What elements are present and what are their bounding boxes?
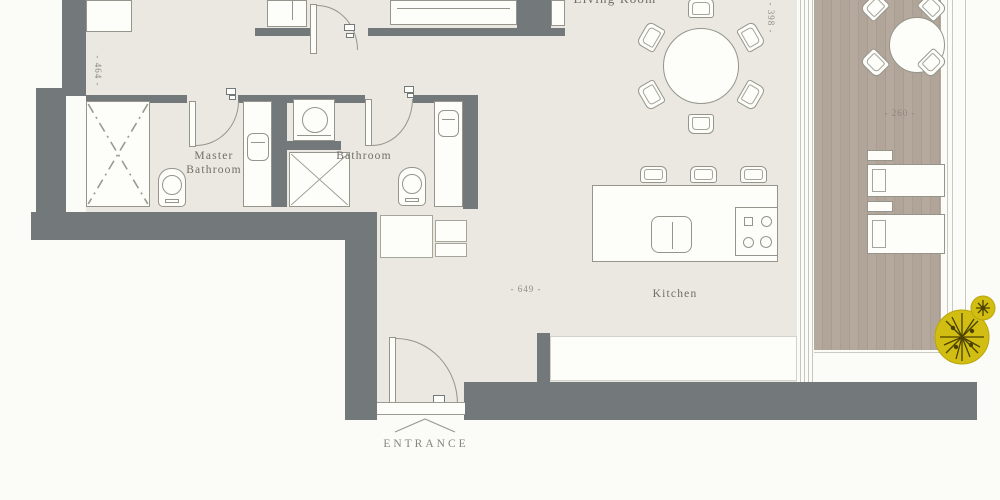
dining-table: [663, 28, 739, 104]
shower: [86, 101, 150, 207]
wall: [271, 95, 287, 207]
door-hardware: [226, 88, 236, 95]
island-sink-icon: [651, 216, 692, 253]
wall: [464, 382, 977, 420]
door-hardware: [346, 33, 354, 38]
door-hardware: [344, 24, 355, 31]
entrance-threshold: [377, 402, 465, 415]
sink-icon: [438, 110, 459, 137]
wall: [463, 95, 478, 209]
door-hardware: [404, 86, 414, 93]
toilet-icon: [398, 167, 426, 206]
door-hardware: [407, 93, 414, 98]
sliding-door-track: [797, 0, 814, 382]
kitchen-label: Kitchen: [640, 287, 710, 301]
dining-chair: [688, 0, 714, 18]
entrance-door-leaf: [389, 337, 396, 404]
sofa-edge-line: [397, 8, 510, 9]
wall: [31, 212, 377, 240]
door-hardware: [229, 95, 236, 100]
side-table: [867, 201, 893, 212]
dimension-balcony: - 260 -: [878, 108, 922, 118]
master-bath-door-leaf: [189, 101, 196, 147]
wardrobe-niche: [267, 0, 307, 27]
closet: [380, 215, 433, 258]
closet: [435, 243, 467, 257]
sofa: [390, 0, 517, 25]
dimension-kitchen: - 649 -: [500, 284, 552, 294]
master-bathroom-label: Master Bathroom: [182, 149, 246, 178]
closet: [86, 0, 132, 32]
bathroom-door-leaf: [365, 99, 372, 146]
shower-x-icon: [87, 102, 149, 206]
wall: [62, 0, 86, 96]
closet: [435, 220, 467, 242]
brand-seal-icon: [926, 293, 1000, 369]
bedroom-door-leaf: [310, 4, 317, 54]
bar-stool: [690, 166, 717, 183]
bar-stool: [640, 166, 667, 183]
dimension-hall: - 464 -: [91, 47, 103, 95]
wall: [36, 88, 66, 214]
sink-icon: [247, 133, 269, 161]
dining-chair: [688, 114, 714, 134]
entrance-chevron-icon: [391, 416, 459, 436]
wall-stub: [537, 333, 550, 383]
bar-stool: [740, 166, 767, 183]
bathroom-label: Bathroom: [329, 149, 399, 163]
living-room-label: Living Room: [560, 0, 670, 7]
wall: [517, 0, 551, 33]
side-table: [867, 150, 893, 161]
dimension-living: - 398 -: [764, 0, 776, 42]
wall: [345, 240, 377, 420]
cooktop-icon: [735, 207, 778, 256]
sun-lounger: [867, 214, 945, 254]
floor-plan: Living Room Master Bathroom Bathroom Kit…: [0, 0, 1000, 500]
wardrobe-rod: [292, 0, 293, 20]
wall: [255, 28, 312, 36]
kitchen-counter: [550, 336, 797, 381]
washing-machine-icon: [293, 99, 335, 141]
entrance-label: ENTRANCE: [376, 437, 476, 451]
sun-lounger: [867, 164, 945, 197]
